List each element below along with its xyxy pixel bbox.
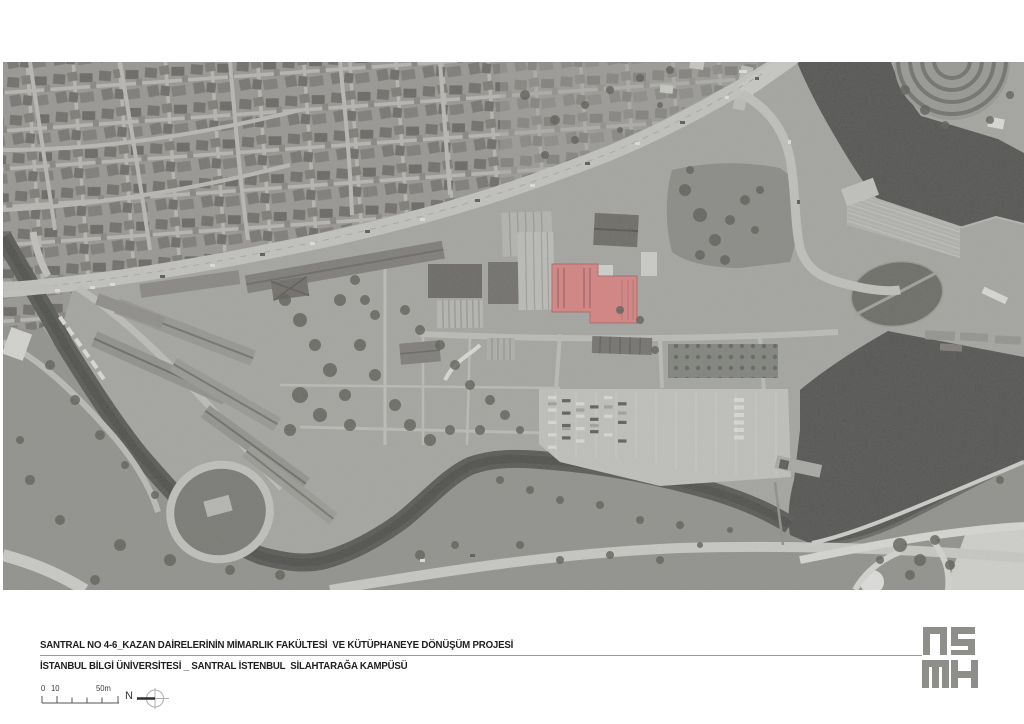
aerial-photo-graphic	[3, 62, 1024, 590]
north-label: N	[125, 690, 133, 702]
north-arrow: N	[125, 687, 177, 709]
scale-bar: 0 10 50m	[40, 683, 130, 705]
scale-ticks-icon	[40, 694, 122, 704]
scale-label-50m: 50m	[96, 683, 111, 693]
compass-icon	[136, 687, 174, 711]
scale-label-10: 10	[51, 683, 60, 693]
caption-divider	[40, 655, 922, 656]
project-title: SANTRAL NO 4-6_KAZAN DAİRELERİNİN MİMARL…	[40, 640, 513, 651]
campus-subtitle: İSTANBUL BİLGİ ÜNİVERSİTESİ _ SANTRAL İS…	[40, 661, 407, 672]
nsmh-logo	[922, 627, 978, 689]
scale-label-0: 0	[41, 683, 45, 693]
presentation-board: SANTRAL NO 4-6_KAZAN DAİRELERİNİN MİMARL…	[0, 0, 1024, 724]
photo-grain	[3, 62, 1024, 590]
aerial-photo	[3, 62, 1024, 590]
nsmh-logo-icon	[922, 627, 978, 689]
